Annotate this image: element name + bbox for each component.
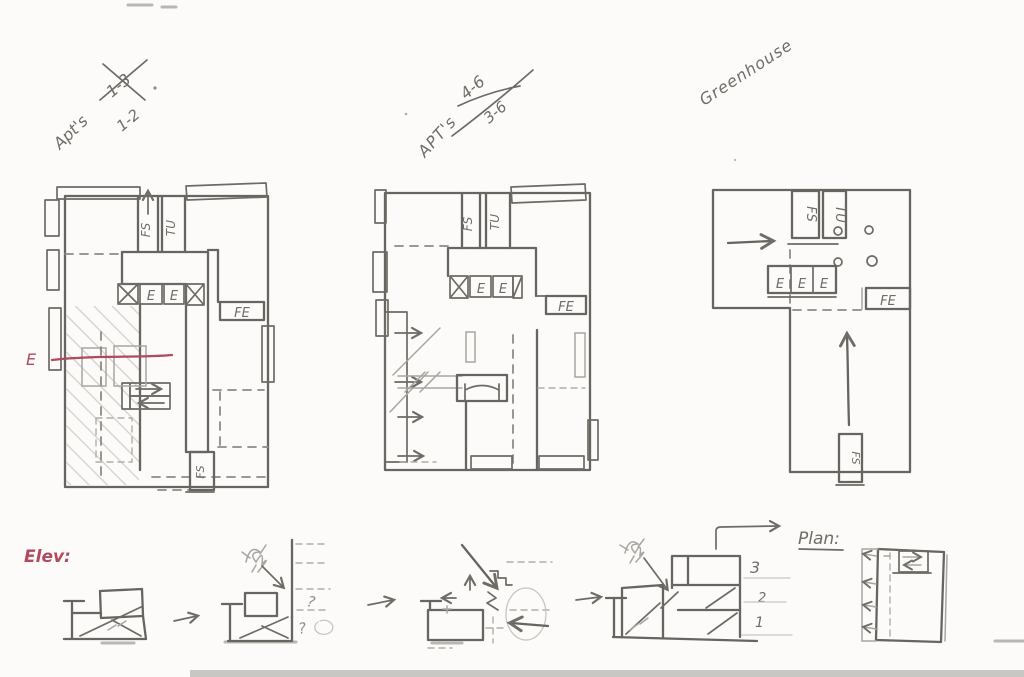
plan-greenhouse: Greenhouse FS TU E E E xyxy=(696,35,910,485)
stair-diagonals xyxy=(240,617,288,638)
x-box xyxy=(186,284,204,305)
scan-artifacts xyxy=(102,5,1024,677)
left-arrow xyxy=(864,582,876,584)
stair-label-fs: FS xyxy=(139,222,153,237)
diagonal-box xyxy=(513,276,522,298)
stair-label-fs: FS xyxy=(461,216,475,231)
fire-equipment-box: FE xyxy=(862,288,910,309)
fe-label: FE xyxy=(558,300,574,315)
pencil-dot xyxy=(153,86,156,89)
plan-apts-3-6: APT's 4-6 3-6 FS TU E E xyxy=(373,70,598,470)
elev-label: Elev: xyxy=(24,547,71,567)
e-box-label: E xyxy=(499,282,508,297)
plan2-title: APT's xyxy=(413,112,460,161)
fire-equipment-box: FE xyxy=(220,302,264,321)
exit-stair-box: FS xyxy=(836,434,864,485)
stair-shaft: FS TU xyxy=(788,191,847,244)
exit-stair-label: FS xyxy=(849,451,862,464)
upper-volume xyxy=(100,589,143,618)
x-box xyxy=(118,284,138,304)
stair-diagonals xyxy=(80,607,141,636)
stair-box xyxy=(899,551,928,572)
sofa-back xyxy=(465,384,499,401)
x-box xyxy=(450,276,468,298)
e-box-label: E xyxy=(147,289,156,304)
door-slot xyxy=(575,333,585,377)
mini-plan-double-walls xyxy=(862,549,947,641)
e-box-label: E xyxy=(776,277,785,292)
plan-label: Plan: xyxy=(798,529,840,549)
scan-edge-strip xyxy=(190,670,1024,677)
outer-wall xyxy=(713,190,910,472)
level-label-1: 1 xyxy=(755,615,764,631)
service-box-row: E E E xyxy=(768,266,836,297)
level-label-2: 2 xyxy=(758,591,766,606)
e-box-label: E xyxy=(170,289,179,304)
highlight-circle xyxy=(506,588,546,640)
sun-scribble xyxy=(620,539,644,563)
plan1-title-group: Apt's 1-3 1-2 xyxy=(49,60,147,154)
base-volume xyxy=(64,601,146,639)
diagonal-arrow xyxy=(462,545,496,587)
pencil-dot xyxy=(405,113,408,116)
mini-stair-box xyxy=(884,551,931,573)
plus-mark xyxy=(443,606,451,613)
underline xyxy=(799,549,843,550)
right-arrow xyxy=(368,600,393,605)
balcony-arrows xyxy=(864,554,876,629)
plan2-revised-number: 3-6 xyxy=(480,98,510,128)
scan-smudge-top xyxy=(128,5,176,7)
level-guides xyxy=(742,578,792,635)
ground-line xyxy=(606,598,757,641)
plan-apts-1-2: Apt's 1-3 1-2 FS TU E E xyxy=(26,60,274,492)
plant-dot xyxy=(834,227,842,235)
e-box-label: E xyxy=(798,277,807,292)
question-mark: ? xyxy=(305,592,317,611)
plan1-revised-number: 1-2 xyxy=(113,106,143,136)
elevation-step-4: 3 2 1 xyxy=(606,526,792,641)
stair-shaft: FS TU xyxy=(461,193,510,248)
plant-circles xyxy=(834,226,877,266)
sun-scribble xyxy=(242,545,266,572)
fe-label: FE xyxy=(880,294,896,309)
mini-plan-outline xyxy=(876,549,944,642)
left-arrow xyxy=(864,605,876,607)
mini-plan: Plan: xyxy=(798,529,947,642)
upper-volume xyxy=(245,593,277,616)
window-bar xyxy=(45,200,61,370)
e-box-label: E xyxy=(820,277,829,292)
fe-label: FE xyxy=(234,306,250,321)
level-label-3: 3 xyxy=(750,558,760,577)
scanned-sketch-page: Apt's 1-3 1-2 FS TU E E xyxy=(0,0,1024,677)
sofa xyxy=(457,375,507,401)
stair-shaft: FS TU xyxy=(138,192,185,252)
window-bar xyxy=(57,187,140,199)
right-arrow xyxy=(576,597,600,600)
exit-stair-label: FS xyxy=(194,465,207,478)
plant-dot xyxy=(867,256,877,266)
plan1-title: Apt's xyxy=(49,111,92,153)
elevation-step-2: ? ? xyxy=(222,540,333,641)
stair-zigzag xyxy=(487,571,512,610)
elevation-step-1 xyxy=(64,589,146,639)
left-volume xyxy=(622,585,663,637)
strikethrough-x xyxy=(100,60,147,100)
plan2-crossed-number: 4-6 xyxy=(456,72,488,103)
service-box-row: E E xyxy=(450,276,522,298)
diagonal-arrow xyxy=(262,566,283,587)
service-box-row: E E xyxy=(118,284,204,305)
tall-volume xyxy=(672,556,740,637)
ramp-strip xyxy=(385,312,462,462)
bent-arrow-to-plan xyxy=(716,526,778,549)
left-arrow xyxy=(864,554,876,556)
question-mark: ? xyxy=(297,619,307,638)
stair-label-fs: FS xyxy=(803,206,818,222)
pencil-shading xyxy=(66,306,139,485)
fire-equipment-box: FE xyxy=(536,296,586,315)
door-slot xyxy=(466,332,475,362)
pencil-hatch-strokes xyxy=(390,328,440,412)
elevation-step-3 xyxy=(421,545,552,648)
section-label-e: E xyxy=(26,350,37,369)
stair-label-tu: TU xyxy=(832,205,847,223)
e-box-label: E xyxy=(477,282,486,297)
plan3-title: Greenhouse xyxy=(696,35,796,109)
plant-dot xyxy=(865,226,873,234)
stair-label-tu: TU xyxy=(164,220,178,236)
right-arrow xyxy=(174,616,197,621)
right-arrow xyxy=(728,241,772,243)
left-arrow xyxy=(864,627,876,629)
dashed-partition xyxy=(213,390,268,447)
step-marks xyxy=(630,618,648,630)
pencil-dot xyxy=(734,159,736,161)
outer-wall xyxy=(385,193,590,470)
pencil-scribble xyxy=(315,620,333,634)
bed xyxy=(471,456,512,469)
corridor-wall xyxy=(208,250,218,302)
stair-label-tu: TU xyxy=(488,214,502,230)
up-arrow xyxy=(847,335,849,425)
sketch-canvas: Apt's 1-3 1-2 FS TU E E xyxy=(0,0,1024,677)
bed xyxy=(539,456,584,469)
elevation-row: Elev: ? ? xyxy=(24,526,947,648)
window-bar xyxy=(186,183,267,200)
base-volume xyxy=(421,601,483,640)
left-arrow xyxy=(511,623,548,626)
plant-dot xyxy=(834,258,842,266)
plan2-title-group: APT's 4-6 3-6 xyxy=(413,70,533,161)
elevator-arrows-box xyxy=(122,383,170,409)
